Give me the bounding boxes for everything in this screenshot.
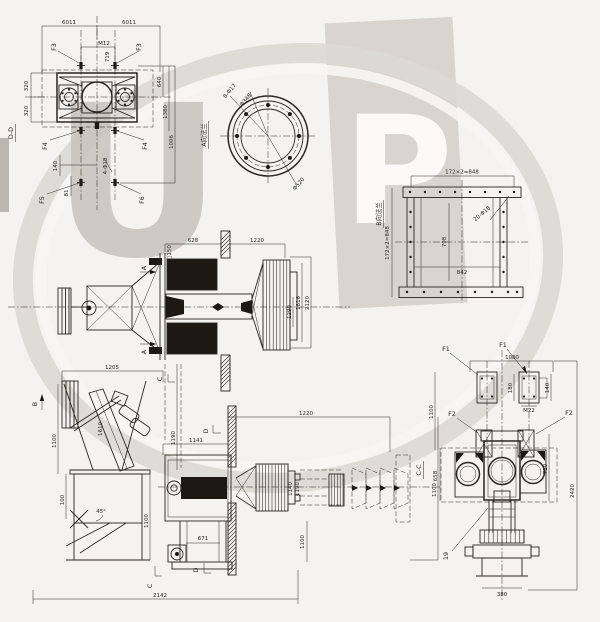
flag-f1-right: F1 xyxy=(499,341,507,349)
dim: M22 xyxy=(523,408,535,414)
view-arrow-a: A xyxy=(140,265,148,270)
dim: 172×2=848 xyxy=(445,170,479,176)
dim: 1100 xyxy=(52,434,58,448)
engineering-drawing: U P 6011 6011 M12 719 xyxy=(0,0,600,622)
dim: 4-Φ18 xyxy=(103,157,109,174)
dim: 1205 xyxy=(105,365,119,371)
dim: 658 xyxy=(433,470,439,481)
dim: 1816 xyxy=(296,296,302,310)
svg-text:B向法兰: B向法兰 xyxy=(374,202,383,226)
flag-f2-left: F2 xyxy=(448,410,456,418)
section-mark-c: C xyxy=(146,583,154,588)
dim: 320 xyxy=(24,80,30,91)
dim: 1100 xyxy=(429,405,435,419)
flag-f3-right: F3 xyxy=(135,43,143,51)
dim: 140 xyxy=(53,160,59,171)
dim: 671 xyxy=(198,536,209,542)
dim: 628 xyxy=(188,238,199,244)
flag-f2-right: F2 xyxy=(565,409,573,417)
flange-b-title: B向法兰 xyxy=(374,200,384,228)
dim: 180 xyxy=(508,382,514,393)
flag-f3-left: F3 xyxy=(50,43,58,51)
svg-text:A向法兰: A向法兰 xyxy=(199,123,208,147)
dim: 1220 xyxy=(250,238,264,244)
up-logo-watermark: U P xyxy=(0,0,600,622)
dim: 1141 xyxy=(189,438,203,444)
flag-f5: F5 xyxy=(38,196,46,204)
dim: 2142 xyxy=(153,593,167,599)
dim: 320 xyxy=(24,105,30,116)
section-mark-d: D xyxy=(202,428,210,433)
dim: 1140 xyxy=(288,482,294,496)
flag-f4-right: F4 xyxy=(141,142,149,150)
dim: 798 xyxy=(442,236,448,247)
dim: 1610 xyxy=(98,422,104,436)
svg-text:D-D: D-D xyxy=(7,127,15,139)
dim: 172×2=848 xyxy=(385,226,391,260)
dim: □150 xyxy=(167,245,173,261)
view-arrow-a: A xyxy=(140,349,148,354)
dim: 380 xyxy=(497,592,508,598)
dim: 710 xyxy=(543,463,549,474)
dim: 1100 xyxy=(432,483,438,497)
dim: 45° xyxy=(96,509,106,515)
section-mark-c: C xyxy=(156,376,164,381)
flag-f1-left: F1 xyxy=(442,345,450,353)
dim: 842 xyxy=(457,270,468,276)
dim: 1100 xyxy=(300,535,306,549)
dim: 719 xyxy=(105,51,111,62)
view-arrow-b: B xyxy=(31,402,39,406)
dim: 1100 xyxy=(144,514,150,528)
dim: 1190 xyxy=(295,482,301,496)
section-mark-d: D xyxy=(192,567,200,572)
dim: 100 xyxy=(60,494,66,505)
flag-f6: F6 xyxy=(138,196,146,204)
flag-f4-left: F4 xyxy=(41,142,49,150)
dim: 640 xyxy=(157,76,163,87)
blueprint-page: U P 6011 6011 M12 719 xyxy=(0,0,600,622)
dim: M12 xyxy=(98,41,110,47)
dim: 1220 xyxy=(299,411,313,417)
dim: 1290 xyxy=(287,305,293,319)
dim: 81 xyxy=(64,190,70,197)
svg-text:C-C: C-C xyxy=(415,464,423,476)
dim: 140 xyxy=(545,382,551,393)
dim: 1380 xyxy=(163,105,169,119)
part-flag-19: 19 xyxy=(442,552,450,560)
dim: 1006 xyxy=(169,135,175,149)
dim: 2120 xyxy=(305,296,311,310)
dim: 1190 xyxy=(171,431,177,445)
watermark-letter-p: P xyxy=(343,85,453,259)
dim: 6011 xyxy=(122,20,136,26)
flange-a-title: A向法兰 xyxy=(199,121,209,149)
dim: 6011 xyxy=(62,20,76,26)
dim: 2420 xyxy=(570,484,576,498)
